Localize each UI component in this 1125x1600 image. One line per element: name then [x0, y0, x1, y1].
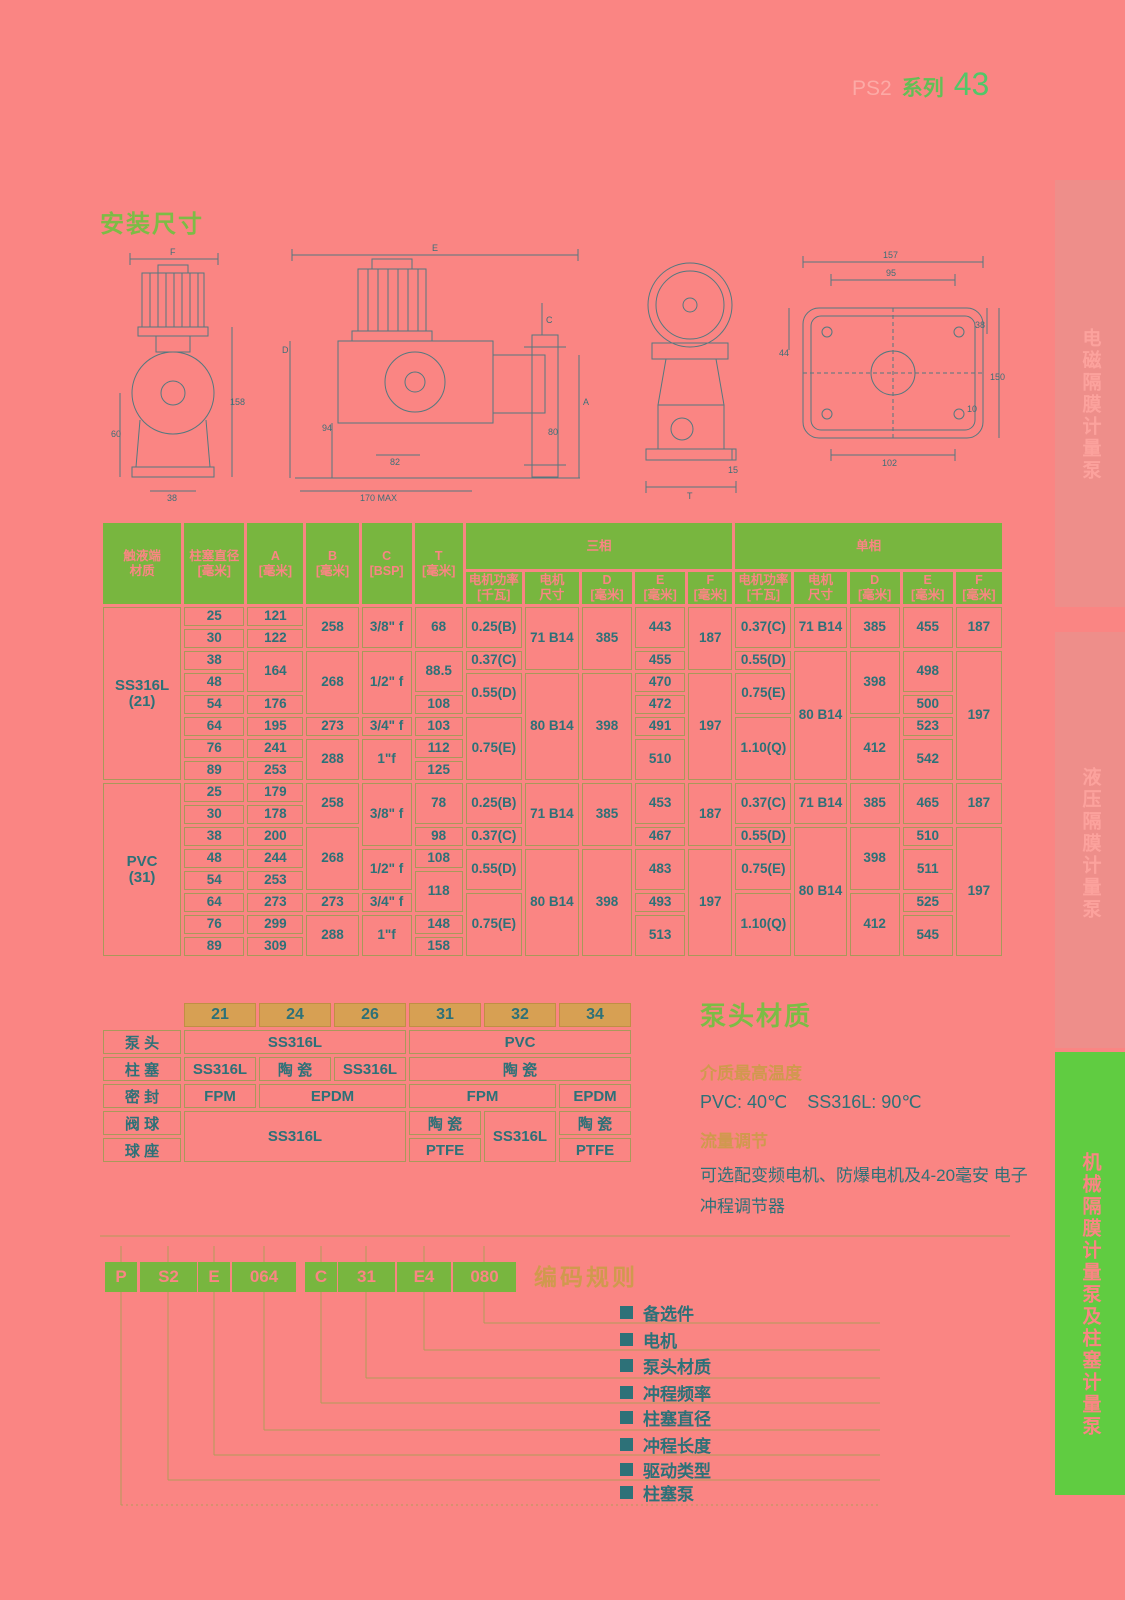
dimension-table: 触液端 材质柱塞直径 [毫米]A [毫米]B [毫米]C [BSP]T [毫米]… — [100, 520, 1005, 959]
table-cell: 64 — [184, 893, 244, 912]
table-cell: 472 — [635, 695, 685, 714]
table-cell: 299 — [247, 915, 303, 934]
table-cell: 89 — [184, 761, 244, 780]
table-cell: 108 — [415, 695, 463, 714]
table-cell: FPM — [184, 1084, 256, 1108]
dim-label-f: F — [170, 247, 176, 257]
pump-head-title: 泵头材质 — [700, 996, 1030, 1033]
table-header-cell: 电机 尺寸 — [794, 572, 846, 604]
table-cell: SS316L — [484, 1111, 556, 1162]
dim-label-150: 150 — [990, 372, 1005, 382]
dim-label-e: E — [432, 243, 438, 253]
material-code-table: 212426313234泵 头SS316LPVC柱 塞SS316L陶 瓷SS31… — [100, 1000, 634, 1165]
dim-label-102: 102 — [882, 458, 897, 468]
table-cell: 1/2" f — [362, 849, 412, 890]
square-bullet-icon — [620, 1486, 633, 1499]
table-cell: 465 — [903, 783, 953, 824]
dim-label-a: A — [583, 397, 589, 407]
table-cell: 1.10(Q) — [735, 893, 791, 956]
table-cell: 80 B14 — [525, 673, 579, 780]
table-cell: 48 — [184, 673, 244, 692]
dim-label-157: 157 — [883, 250, 898, 260]
table-cell: 197 — [688, 673, 732, 780]
code-block-stroke-freq: C — [305, 1262, 337, 1292]
table-cell: 25 — [184, 607, 244, 626]
page-number: 43 — [954, 66, 990, 103]
table-cell: 31 — [409, 1003, 481, 1027]
table-cell: 34 — [559, 1003, 631, 1027]
table-cell: 1"f — [362, 915, 412, 956]
table-cell: EPDM — [259, 1084, 406, 1108]
code-item-stroke-freq: 冲程频率 — [620, 1380, 711, 1405]
table-cell: 112 — [415, 739, 463, 758]
table-header-cell: 柱塞直径 [毫米] — [184, 523, 244, 604]
table-cell: 0.75(E) — [735, 673, 791, 714]
table-cell: 3/4" f — [362, 717, 412, 736]
table-cell: 0.75(E) — [735, 849, 791, 890]
sidebar-tab-mechanical-diaphragm-plunger-pumps: 机械隔膜计量泵及柱塞计量泵 — [1055, 1052, 1125, 1495]
table-cell: 密 封 — [103, 1084, 181, 1108]
table-cell: 187 — [688, 783, 732, 846]
table-cell: 0.55(D) — [735, 827, 791, 846]
table-header-cell: C [BSP] — [362, 523, 412, 604]
coding-rule-title: 编码规则 — [534, 1258, 638, 1292]
code-item-plunger-dia: 柱塞直径 — [620, 1405, 711, 1430]
square-bullet-icon — [620, 1306, 633, 1319]
table-cell: 483 — [635, 849, 685, 890]
table-cell: 108 — [415, 849, 463, 868]
table-cell: 柱 塞 — [103, 1057, 181, 1081]
table-cell: 398 — [582, 849, 632, 956]
sidebar-tab-label: 电磁隔膜计量泵 — [1077, 328, 1104, 607]
table-cell: 197 — [956, 827, 1002, 956]
table-cell: 64 — [184, 717, 244, 736]
table-cell: 467 — [635, 827, 685, 846]
table-header-cell: 电机功率 [千瓦] — [735, 572, 791, 604]
table-cell: 1.10(Q) — [735, 717, 791, 780]
table-cell: 68 — [415, 607, 463, 648]
square-bullet-icon — [620, 1463, 633, 1476]
table-cell: 71 B14 — [794, 607, 846, 648]
code-block-drive-type: S2 — [140, 1262, 197, 1292]
table-cell: 118 — [415, 871, 463, 912]
table-cell: 187 — [956, 607, 1002, 648]
table-header-cell: 单相 — [735, 523, 1002, 569]
code-block-stroke-length: E — [198, 1262, 230, 1292]
table-cell: 98 — [415, 827, 463, 846]
code-block-options: 080 — [453, 1262, 516, 1292]
table-cell: 455 — [903, 607, 953, 648]
table-cell: 273 — [306, 893, 358, 912]
table-cell: 513 — [635, 915, 685, 956]
table-cell: 0.55(D) — [735, 651, 791, 670]
pump-front-view-drawing: F 60 158 38 — [110, 245, 250, 503]
table-cell: SS316L — [184, 1030, 406, 1054]
table-cell: 3/8" f — [362, 607, 412, 648]
table-cell: 176 — [247, 695, 303, 714]
table-cell: 385 — [850, 783, 900, 824]
max-temp-heading: 介质最高温度 — [700, 1059, 1030, 1084]
table-cell: PVC (31) — [103, 783, 181, 956]
table-cell: 76 — [184, 915, 244, 934]
table-cell: 525 — [903, 893, 953, 912]
table-cell: 197 — [956, 651, 1002, 780]
square-bullet-icon — [620, 1411, 633, 1424]
table-cell: 0.37(C) — [735, 607, 791, 648]
table-cell: 443 — [635, 607, 685, 648]
table-cell: 54 — [184, 695, 244, 714]
table-cell: 268 — [306, 827, 358, 890]
table-header-cell: 触液端 材质 — [103, 523, 181, 604]
dim-label-d: D — [282, 345, 289, 355]
table-cell: 510 — [903, 827, 953, 846]
table-cell: 3/4" f — [362, 893, 412, 912]
table-cell: 71 B14 — [525, 607, 579, 670]
table-cell: 30 — [184, 629, 244, 648]
table-header-cell: E [毫米] — [635, 572, 685, 604]
table-cell: 103 — [415, 717, 463, 736]
table-cell: 511 — [903, 849, 953, 890]
table-cell: 412 — [850, 717, 900, 780]
table-cell: 385 — [850, 607, 900, 648]
sidebar-tab-label: 液压隔膜计量泵 — [1077, 767, 1104, 1048]
pump-end-view-drawing: 15 T — [632, 243, 747, 503]
code-block-motor: E4 — [397, 1262, 451, 1292]
table-cell: 121 — [247, 607, 303, 626]
table-cell: 195 — [247, 717, 303, 736]
pump-side-view-drawing: E D 94 C A 80 82 170 MAX — [280, 243, 592, 505]
table-header-cell: F [毫米] — [688, 572, 732, 604]
table-cell: PVC — [409, 1030, 631, 1054]
table-cell: 268 — [306, 651, 358, 714]
pump-head-info: 泵头材质 介质最高温度 PVC: 40℃ SS316L: 90℃ 流量调节 可选… — [700, 996, 1030, 1229]
table-cell: 80 B14 — [794, 651, 846, 780]
table-header-cell: 电机功率 [千瓦] — [466, 572, 522, 604]
page-header: PS2 系列 43 — [852, 66, 989, 103]
table-cell: 陶 瓷 — [409, 1057, 631, 1081]
table-cell: 510 — [635, 739, 685, 780]
code-item-stroke-length: 冲程长度 — [620, 1432, 711, 1457]
square-bullet-icon — [620, 1386, 633, 1399]
table-cell: 32 — [484, 1003, 556, 1027]
table-cell: PTFE — [559, 1138, 631, 1162]
code-item-drive-type: 驱动类型 — [620, 1457, 711, 1482]
dim-label-c: C — [546, 315, 553, 325]
sidebar-tab-label: 机械隔膜计量泵及柱塞计量泵 — [1077, 1152, 1104, 1495]
table-cell: 0.25(B) — [466, 783, 522, 824]
code-block-plunger-dia: 064 — [232, 1262, 296, 1292]
table-cell: 0.25(B) — [466, 607, 522, 648]
table-cell: 25 — [184, 783, 244, 802]
table-cell: 0.75(E) — [466, 717, 522, 780]
table-cell: 158 — [415, 937, 463, 956]
table-header-cell: 电机 尺寸 — [525, 572, 579, 604]
dim-label-158: 158 — [230, 397, 245, 407]
table-cell: 78 — [415, 783, 463, 824]
installation-dimensions-title: 安装尺寸 — [100, 204, 204, 239]
table-cell: 398 — [850, 827, 900, 890]
table-cell: 500 — [903, 695, 953, 714]
table-header-cell: A [毫米] — [247, 523, 303, 604]
code-item-motor: 电机 — [620, 1327, 677, 1352]
table-cell: 288 — [306, 915, 358, 956]
table-cell: 523 — [903, 717, 953, 736]
table-header-cell: T [毫米] — [415, 523, 463, 604]
table-cell: 385 — [582, 607, 632, 670]
table-cell: 球 座 — [103, 1138, 181, 1162]
table-cell: 38 — [184, 827, 244, 846]
dim-label-15: 15 — [728, 465, 738, 475]
series-prefix: PS2 — [852, 77, 892, 101]
square-bullet-icon — [620, 1333, 633, 1346]
dim-label-10: 10 — [967, 404, 977, 414]
table-cell: 陶 瓷 — [259, 1057, 331, 1081]
table-cell: SS316L — [184, 1057, 256, 1081]
table-cell: EPDM — [559, 1084, 631, 1108]
table-cell: 125 — [415, 761, 463, 780]
table-cell: 泵 头 — [103, 1030, 181, 1054]
dim-label-38b: 38 — [975, 320, 985, 330]
sidebar-tab-hydraulic-diaphragm-pumps: 液压隔膜计量泵 — [1055, 632, 1125, 1048]
table-cell: 545 — [903, 915, 953, 956]
table-cell: 26 — [334, 1003, 406, 1027]
table-cell: 80 B14 — [794, 827, 846, 956]
table-cell: 470 — [635, 673, 685, 692]
table-cell: SS316L (21) — [103, 607, 181, 780]
code-block-head-material: 31 — [338, 1262, 395, 1292]
table-header-cell: B [毫米] — [306, 523, 358, 604]
table-header-cell: D [毫米] — [582, 572, 632, 604]
table-cell: 491 — [635, 717, 685, 736]
table-cell: 241 — [247, 739, 303, 758]
table-cell: 54 — [184, 871, 244, 890]
code-item-options: 备选件 — [620, 1300, 694, 1325]
dim-label-95: 95 — [886, 268, 896, 278]
table-cell: 24 — [259, 1003, 331, 1027]
catalog-page: PS2 系列 43 安装尺寸 F 60 158 38 E — [0, 0, 1125, 1600]
table-cell: 阀 球 — [103, 1111, 181, 1135]
table-cell: 71 B14 — [794, 783, 846, 824]
table-cell: 493 — [635, 893, 685, 912]
table-cell: 288 — [306, 739, 358, 780]
table-cell: 258 — [306, 783, 358, 824]
table-cell: 148 — [415, 915, 463, 934]
table-cell: 498 — [903, 651, 953, 692]
table-cell: 178 — [247, 805, 303, 824]
table-cell: 0.37(C) — [466, 827, 522, 846]
table-cell: 21 — [184, 1003, 256, 1027]
table-header-cell: F [毫米] — [956, 572, 1002, 604]
table-cell: 385 — [582, 783, 632, 846]
table-cell: 0.37(C) — [735, 783, 791, 824]
dim-label-60: 60 — [111, 429, 121, 439]
table-cell: 0.75(E) — [466, 893, 522, 956]
table-cell: 88.5 — [415, 651, 463, 692]
table-cell: 89 — [184, 937, 244, 956]
mounting-plate-drawing: 157 95 38 44 150 10 102 — [775, 250, 1015, 475]
table-cell: 陶 瓷 — [409, 1111, 481, 1135]
square-bullet-icon — [620, 1359, 633, 1372]
table-cell: 1/2" f — [362, 651, 412, 714]
table-header-cell: 三相 — [466, 523, 733, 569]
table-cell: 455 — [635, 651, 685, 670]
dim-label-44: 44 — [779, 348, 789, 358]
table-cell: 0.55(D) — [466, 673, 522, 714]
table-cell: SS316L — [334, 1057, 406, 1081]
square-bullet-icon — [620, 1438, 633, 1451]
code-item-pump-type: 柱塞泵 — [620, 1480, 694, 1505]
series-label: 系列 — [902, 72, 944, 102]
table-cell: 48 — [184, 849, 244, 868]
table-cell: 197 — [688, 849, 732, 956]
dim-label-94: 94 — [322, 423, 332, 433]
table-cell: 542 — [903, 739, 953, 780]
table-cell: 179 — [247, 783, 303, 802]
table-cell: 陶 瓷 — [559, 1111, 631, 1135]
table-cell: 122 — [247, 629, 303, 648]
flow-adjust-heading: 流量调节 — [700, 1127, 1030, 1152]
code-block-pump-type: P — [105, 1262, 137, 1292]
dim-label-82: 82 — [390, 457, 400, 467]
table-cell: 164 — [247, 651, 303, 692]
flow-adjust-text: 可选配变频电机、防爆电机及4-20毫安 电子冲程调节器 — [700, 1160, 1030, 1223]
table-cell: 187 — [688, 607, 732, 670]
table-cell: 0.37(C) — [466, 651, 522, 670]
table-cell: 273 — [247, 893, 303, 912]
max-temp-values: PVC: 40℃ SS316L: 90℃ — [700, 1092, 1030, 1113]
table-cell: 1"f — [362, 739, 412, 780]
table-cell: PTFE — [409, 1138, 481, 1162]
table-cell: 76 — [184, 739, 244, 758]
table-cell: 412 — [850, 893, 900, 956]
table-cell: 71 B14 — [525, 783, 579, 846]
table-cell: 453 — [635, 783, 685, 824]
table-cell: 200 — [247, 827, 303, 846]
table-header-cell: D [毫米] — [850, 572, 900, 604]
dim-label-t: T — [687, 491, 693, 501]
dim-label-80: 80 — [548, 427, 558, 437]
table-cell: 398 — [582, 673, 632, 780]
table-cell: SS316L — [184, 1111, 406, 1162]
dim-label-38: 38 — [167, 493, 177, 503]
table-cell: 38 — [184, 651, 244, 670]
sidebar-tab-solenoid-diaphragm-pumps: 电磁隔膜计量泵 — [1055, 180, 1125, 607]
table-cell: 309 — [247, 937, 303, 956]
table-cell: 253 — [247, 761, 303, 780]
table-cell: 80 B14 — [525, 849, 579, 956]
table-cell: 30 — [184, 805, 244, 824]
table-cell: 273 — [306, 717, 358, 736]
table-header-cell: E [毫米] — [903, 572, 953, 604]
dim-label-170max: 170 MAX — [360, 493, 397, 503]
table-cell: 187 — [956, 783, 1002, 824]
table-cell — [103, 1003, 181, 1027]
code-item-head-material: 泵头材质 — [620, 1353, 711, 1378]
table-cell: 398 — [850, 651, 900, 714]
table-cell: 253 — [247, 871, 303, 890]
table-cell: 0.55(D) — [466, 849, 522, 890]
table-cell: FPM — [409, 1084, 556, 1108]
table-cell: 258 — [306, 607, 358, 648]
table-cell: 244 — [247, 849, 303, 868]
table-cell: 3/8" f — [362, 783, 412, 846]
